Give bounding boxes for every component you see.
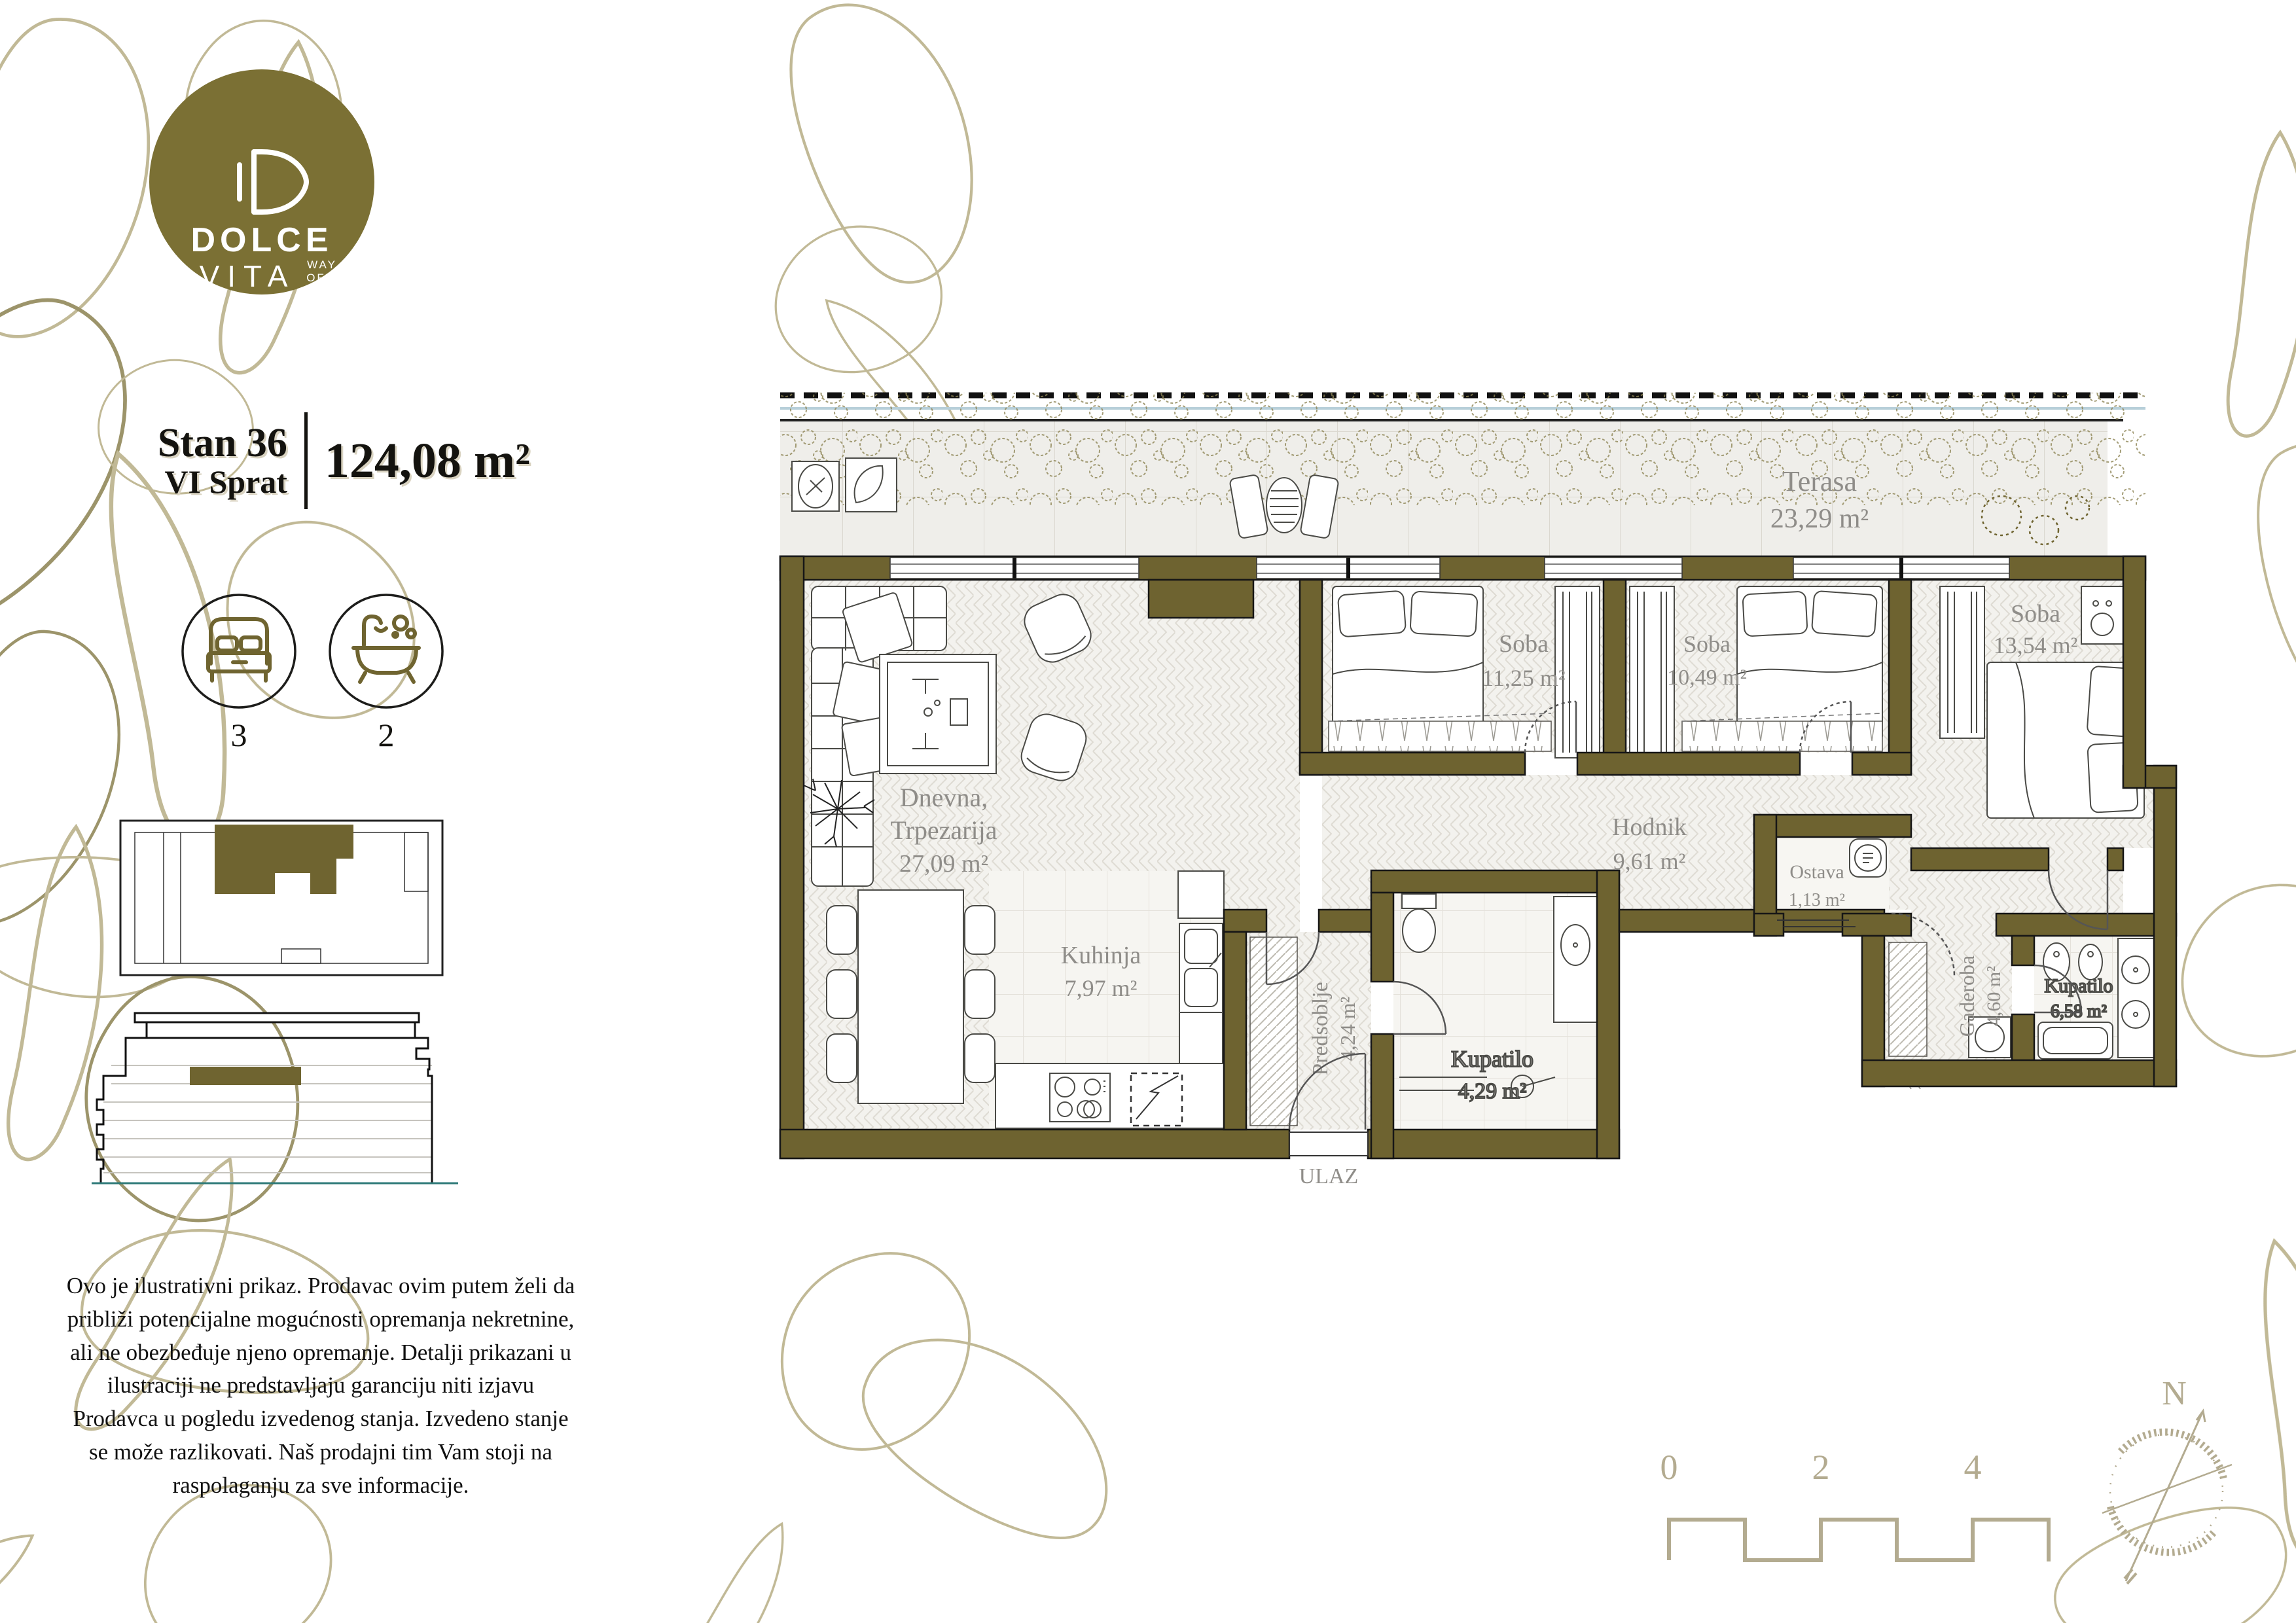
bedrooms-count: 3 [231,717,247,753]
kitchen-label: Kuhinja [1061,942,1141,969]
building-keyplan [118,818,445,988]
wardrobe-area: 4,60 m² [1983,966,2005,1026]
bathroom2-area: 6,58 m² [2051,1001,2107,1022]
terrace-area: 23,29 m² [1770,504,1869,534]
unit-floor: VI Sprat [124,465,287,499]
bathroom2-label: Kupatilo [2045,975,2113,997]
bedroom3-vanity [2081,586,2123,644]
terrace: Terasa 23,29 m² [780,393,2145,556]
logo-tag-of: OF [306,272,326,284]
logo-tag-life: LIFE [304,285,336,297]
bedroom3-label: Soba [2011,600,2060,628]
scale-and-compass: 0 2 4 N [1617,1348,2258,1610]
bathroom1-label: Kupatilo [1451,1046,1534,1072]
logo-word-dolce: DOLCE [191,221,333,259]
dining-table [827,890,995,1103]
hallway-area: 9,61 m² [1613,848,1686,874]
brochure-page: DOLCE VITA WAY OF LIFE Stan 36 VI Sprat … [0,0,2296,1623]
building-elevation [92,1008,458,1198]
entrance-label: ULAZ [1299,1164,1359,1188]
bedroom2-label: Soba [1683,631,1731,657]
scale-2: 2 [1812,1448,1830,1487]
scale-0: 0 [1660,1448,1678,1487]
foyer-label: Predsoblje [1308,982,1333,1076]
bathrooms-stat: 2 [330,595,442,753]
storage-label: Ostava [1789,861,1844,883]
bedroom3-area: 13,54 m² [1994,632,2078,658]
stove [1050,1073,1110,1122]
logo-tag-way: WAY [307,259,337,271]
unit-highlight-elevation [190,1067,301,1085]
kitchen-area: 7,97 m² [1065,975,1138,1001]
unit-title-block: Stan 36 VI Sprat 124,08 m² [124,412,530,509]
logo-word-vita: VITA [200,259,296,293]
unit-name-floor: Stan 36 VI Sprat [124,422,287,499]
terrace-table-set [1229,474,1338,539]
unit-stats: 3 2 [170,582,471,766]
bed-icon [208,619,270,681]
bedrooms-stat: 3 [183,595,295,753]
title-divider [304,412,308,509]
compass: N [2102,1375,2232,1584]
bathrooms-count: 2 [378,717,395,753]
scale-4: 4 [1964,1448,1982,1487]
bathtub-icon [353,616,419,682]
brand-logo: DOLCE VITA WAY OF LIFE [131,52,393,314]
living-area: 27,09 m² [899,850,988,878]
floor-plan: Terasa 23,29 m² [772,366,2186,1191]
bedroom2-area: 10,49 m² [1667,666,1747,690]
bedroom1-label: Soba [1499,630,1549,658]
bedroom1-area: 11,25 m² [1482,665,1565,691]
terrace-label: Terasa [1782,465,1857,497]
bathroom1-area: 4,29 m² [1458,1079,1527,1103]
wardrobe-label: Gaderoba [1955,955,1979,1037]
bedroom2-furniture: Soba 10,49 m² [1630,586,1882,758]
unit-area: 124,08 m² [325,433,530,490]
hallway-label: Hodnik [1612,813,1687,841]
living-label-2: Trpezarija [891,815,997,845]
bedroom1-furniture: Soba 11,25 m² [1329,586,1600,758]
living-label-1: Dnevna, [900,783,988,812]
kitchen-sink [1179,923,1223,1012]
unit-name: Stan 36 [124,422,287,465]
disclaimer-text: Ovo je ilustrativni prikaz. Prodavac ovi… [62,1270,579,1502]
coffee-table [880,654,996,774]
water-heater [1850,839,1886,877]
scale-bar: 0 2 4 [1660,1448,2049,1561]
foyer-area: 4,24 m² [1336,997,1359,1061]
terrace-greenery [780,393,2145,505]
storage-area: 1,13 m² [1789,890,1845,910]
compass-north-label: N [2162,1375,2187,1412]
